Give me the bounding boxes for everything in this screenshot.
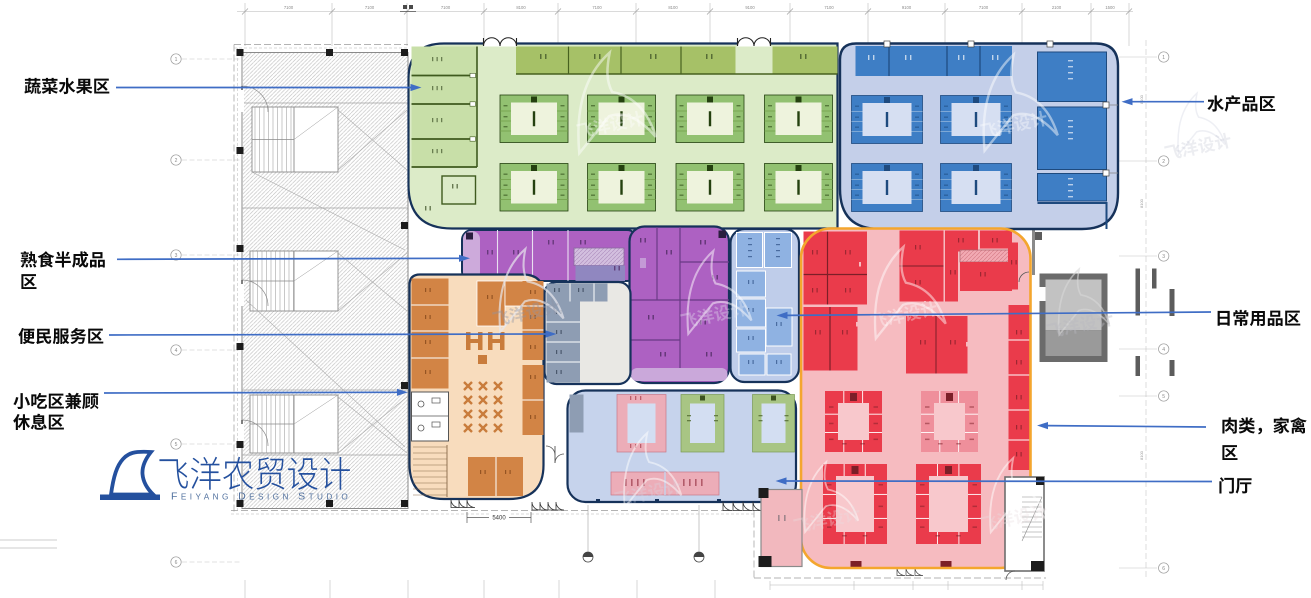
svg-text:8100: 8100 <box>668 5 678 10</box>
svg-text:5: 5 <box>175 442 178 448</box>
svg-text:3: 3 <box>175 253 178 259</box>
svg-text:7100: 7100 <box>592 5 602 10</box>
svg-text:2: 2 <box>175 158 178 164</box>
svg-text:8100: 8100 <box>1139 198 1144 208</box>
svg-text:5400: 5400 <box>492 516 506 522</box>
svg-text:8100: 8100 <box>516 5 526 10</box>
svg-text:6: 6 <box>1162 566 1165 572</box>
svg-text:5: 5 <box>1162 394 1165 400</box>
svg-text:7100: 7100 <box>284 5 294 10</box>
svg-text:FEIYANG DESIGN STUDIO: FEIYANG DESIGN STUDIO <box>171 491 350 503</box>
svg-text:4: 4 <box>175 348 178 354</box>
svg-text:8100: 8100 <box>1139 450 1144 460</box>
svg-text:6: 6 <box>175 560 178 566</box>
svg-text:1: 1 <box>1162 55 1165 61</box>
svg-text:2: 2 <box>1162 159 1165 165</box>
svg-text:7100: 7100 <box>824 5 834 10</box>
svg-text:1: 1 <box>175 57 178 63</box>
svg-text:7100: 7100 <box>979 5 989 10</box>
svg-text:9100: 9100 <box>745 5 755 10</box>
svg-text:7100: 7100 <box>441 5 451 10</box>
svg-text:3: 3 <box>1162 254 1165 260</box>
svg-text:2100: 2100 <box>1052 5 1062 10</box>
svg-text:4: 4 <box>1162 347 1165 353</box>
svg-text:7100: 7100 <box>365 5 375 10</box>
svg-text:9100: 9100 <box>902 5 912 10</box>
svg-text:1500: 1500 <box>1105 5 1115 10</box>
